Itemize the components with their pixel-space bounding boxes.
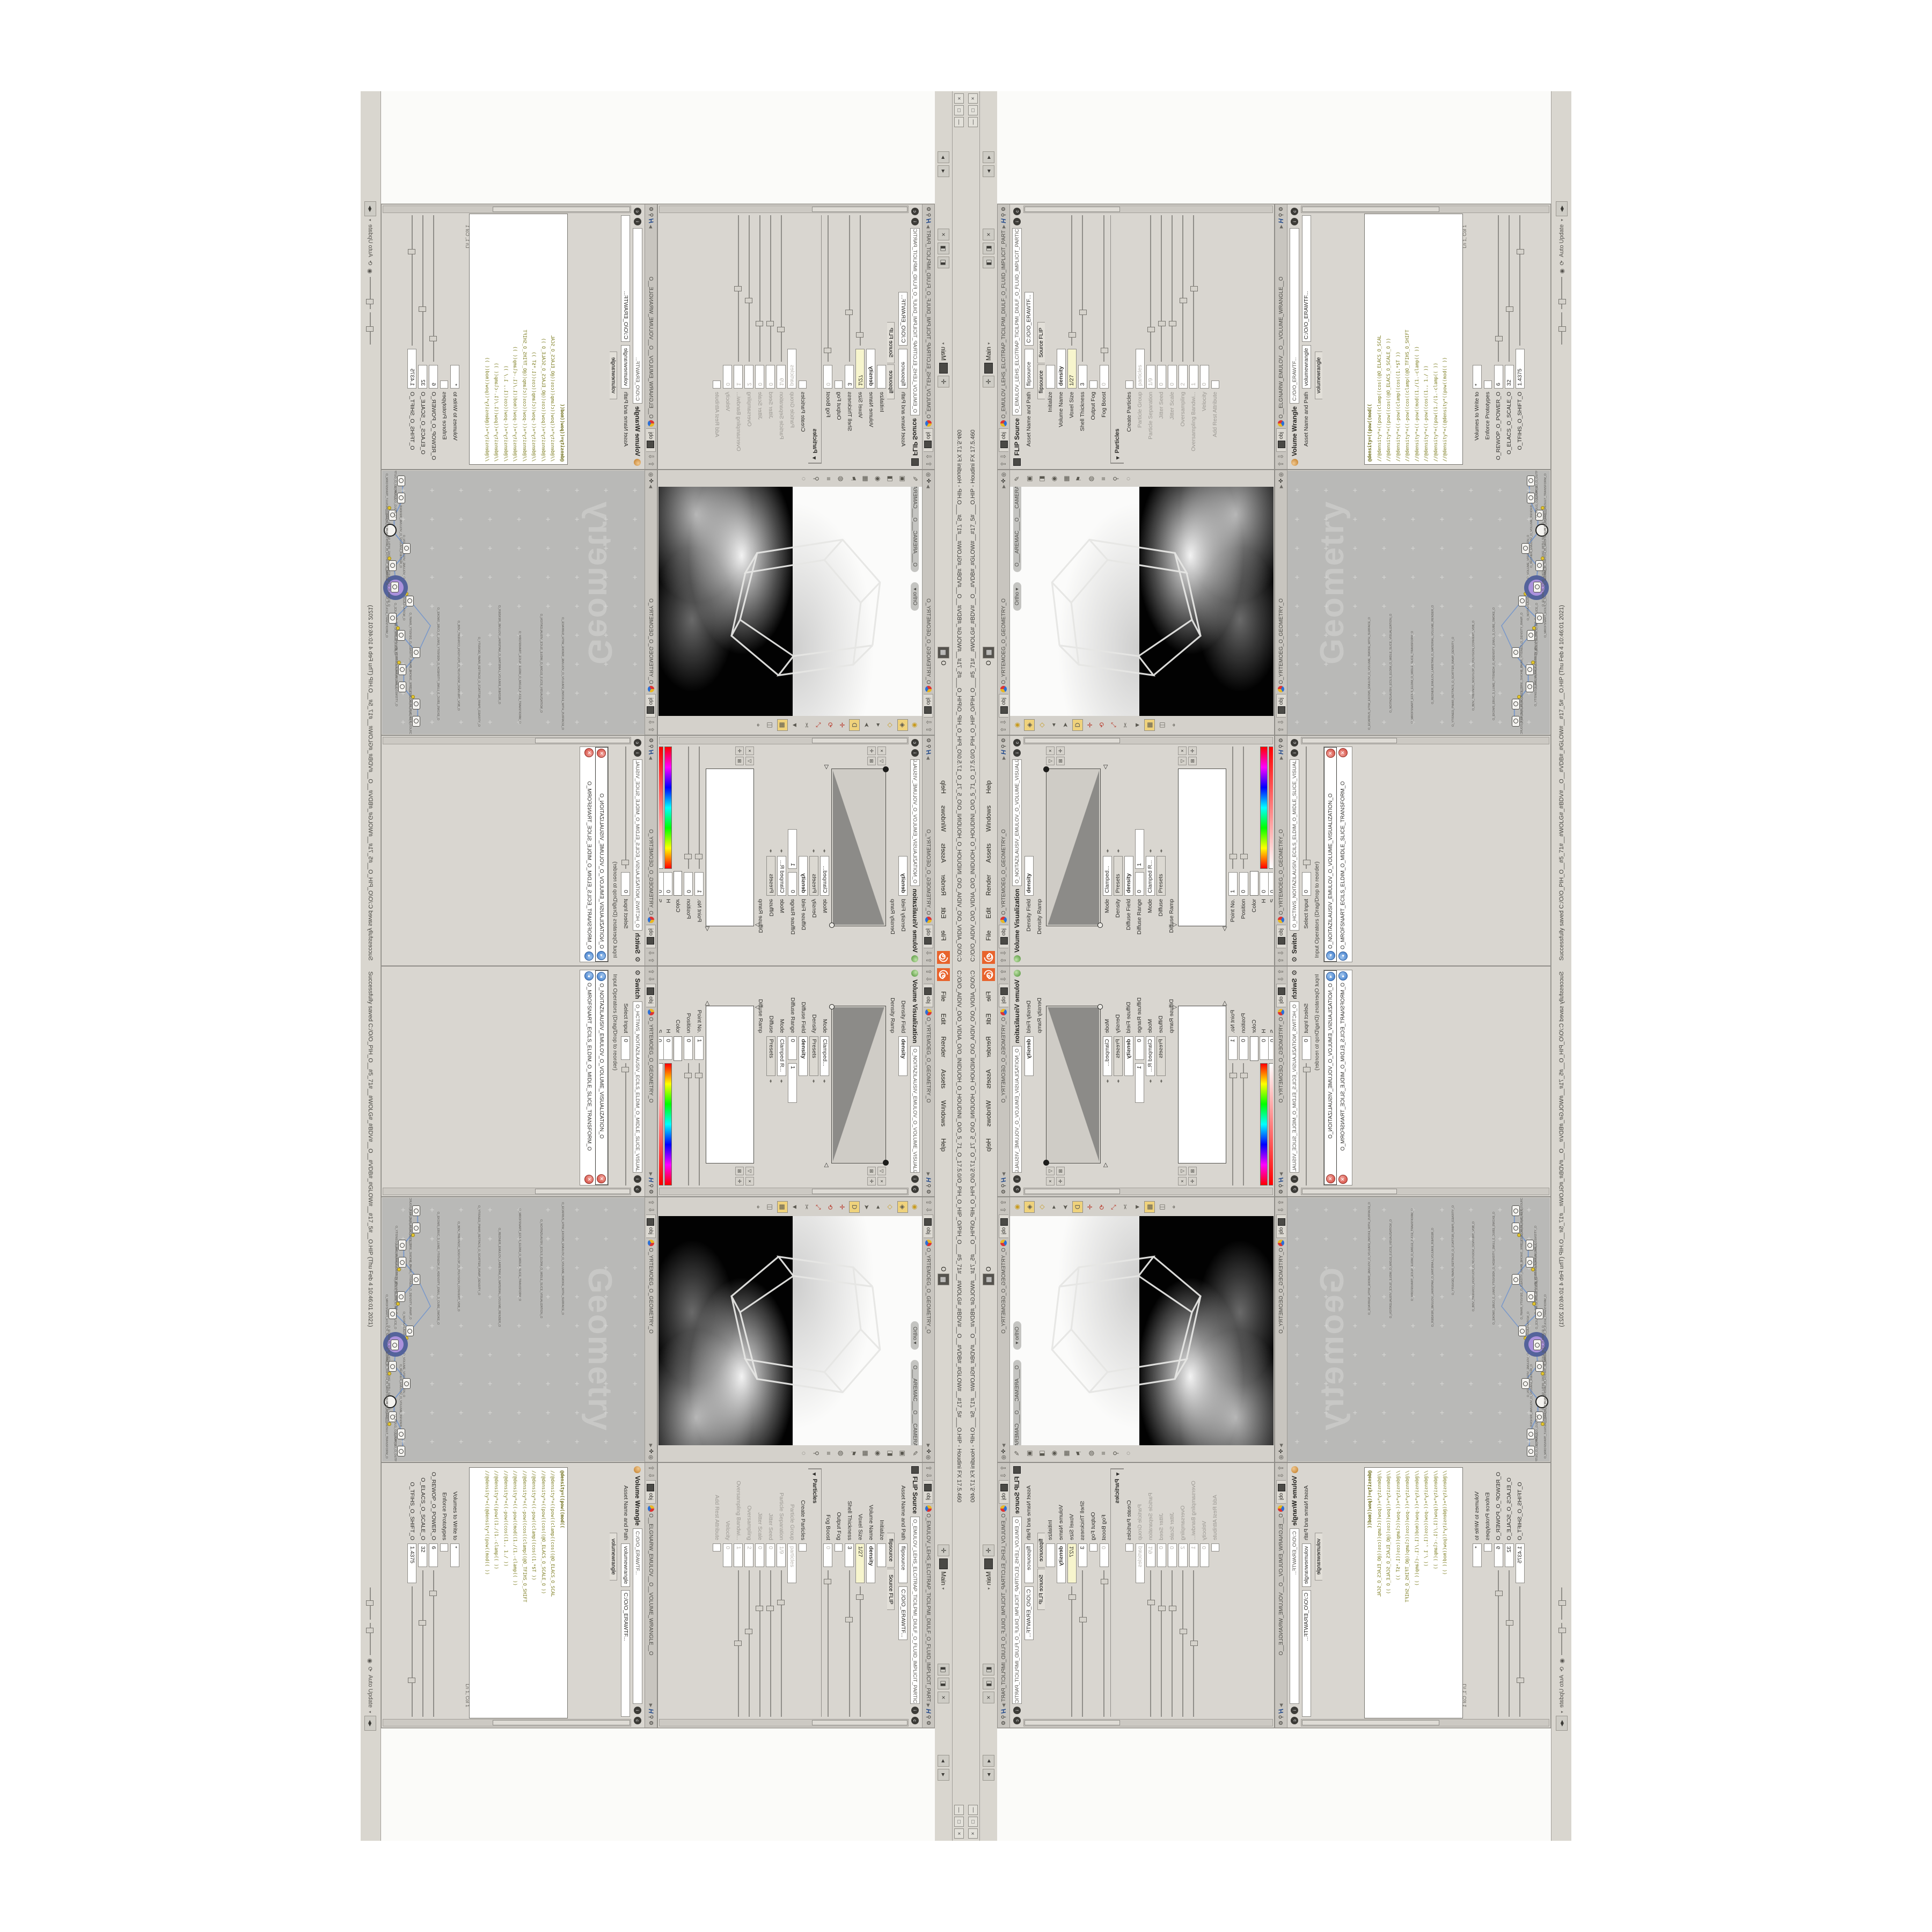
display-normals-icon[interactable]: ⚑ [848,473,858,484]
back-arrow-icon[interactable]: ◂ [874,720,883,730]
help-circle-icon[interactable]: i [1013,749,1021,757]
param-value-field[interactable]: Clamped R... [778,856,787,896]
ramp-button[interactable]: ⊞ [1056,757,1065,765]
param-value-field[interactable]: Clamped... [1103,1036,1112,1076]
scale-tool-icon[interactable]: ⤢ [814,720,823,730]
menu-edit[interactable]: Edit [940,902,947,925]
viewport-canvas[interactable]: Ortho ▾ O___AREMAC___O___CAMERA___O [1010,487,1274,716]
volvis-node-path-field[interactable]: O_NOITAZILAUSIV_EMULOV_O_VOLUME_VISUALIZ… [1012,1046,1022,1173]
desktop-selector[interactable]: Main [985,347,992,361]
param-value-field[interactable]: 0 [766,1543,775,1567]
select-input-slider[interactable] [622,747,630,869]
search-icon[interactable]: ⚲ [1278,1715,1284,1719]
spinner-arrows[interactable]: ◂▸ [1105,1079,1110,1082]
param-value-field[interactable]: 0 [1100,1543,1109,1567]
refresh-icon[interactable]: ⟳ [367,1667,374,1672]
checkbox[interactable] [1484,380,1492,389]
ramp-marker-top[interactable]: ▽ [754,923,760,927]
param-value-field[interactable]: flipsource [899,349,908,389]
ramp-area[interactable]: ▽◁ [1178,1006,1226,1163]
ramp-button[interactable]: ▽ [877,757,886,765]
checkbox[interactable] [713,380,721,389]
param-value-field[interactable]: Presets [1114,1036,1123,1076]
param-slider[interactable] [1190,215,1197,362]
snap-tool-icon[interactable]: ◇ [885,1202,895,1212]
pane-split-icon[interactable]: ✛ [983,1545,994,1556]
insert-input-icon[interactable]: ◂ [1338,971,1348,980]
checkbox[interactable] [1484,1543,1492,1552]
select-arrow-icon[interactable]: ➤ [1060,720,1070,730]
checkbox[interactable] [1125,1543,1133,1552]
param-value-field[interactable]: particles [788,1543,797,1583]
param-value-field[interactable]: density [1024,856,1034,896]
param-value-field[interactable]: 0 [1100,365,1109,389]
comment-circle-icon[interactable]: c [1291,1717,1298,1724]
param-value-field[interactable]: 3 [1078,1543,1087,1567]
volvis-node-path-field[interactable]: O_NOITAZILAUSIV_EMULOV_O_VOLUME_VISUALIZ… [910,759,920,886]
network-type-tab[interactable]: obj [1276,984,1286,1007]
pane-maximize-icon[interactable]: ⇧ [1277,969,1285,975]
render-view-tool-icon[interactable]: ⌖ [753,720,763,730]
network-type-tab[interactable]: obj [999,694,1008,718]
scale-tool-icon[interactable]: ⤢ [1109,720,1118,730]
translate-tool-icon[interactable]: ✛ [837,1202,847,1212]
viewport-canvas[interactable]: Ortho ▾ O___AREMAC___O___CAMERA___O [658,1216,922,1445]
ramp-area[interactable]: ▽◁ [706,1006,754,1163]
select-input-field[interactable]: 0 [1302,1036,1311,1060]
tab-source-flip[interactable]: Source FLIP [887,1569,895,1611]
param-value-field[interactable]: 0 [1260,1036,1269,1060]
search-icon[interactable]: ⚲ [1278,213,1284,217]
comment-circle-icon[interactable]: c [634,1717,641,1724]
pane-minimize-icon[interactable]: ⇩ [924,976,933,982]
help-circle-icon[interactable]: i [911,749,919,757]
tab-flipsource[interactable]: flipsource [1037,1533,1045,1568]
ramp-area[interactable]: ▽◁ [706,769,754,926]
spinner-arrows[interactable]: ◂▸ [780,1079,785,1082]
param-slider[interactable] [1240,747,1247,869]
network-node[interactable] [1518,1326,1526,1336]
breadcrumb[interactable]: O_YRTEMOEG_O_GEOMETRY_O [648,1017,654,1170]
param-slider[interactable] [1505,1570,1513,1717]
tab-flipsource[interactable]: flipsource [887,1533,895,1568]
comment-circle-icon[interactable]: c [634,208,641,215]
param-slider[interactable] [1079,1570,1086,1717]
wrangle-scrollbar[interactable] [1301,1719,1549,1726]
handles-tool-icon[interactable]: D [849,719,860,731]
param-value-field[interactable]: Clamped R... [778,1036,787,1076]
param-value-field[interactable]: Clamped R... [1146,1036,1155,1076]
back-arrow-icon[interactable]: ◂ [1049,1202,1058,1212]
param-value-field[interactable]: * [451,1543,460,1567]
param-slider[interactable] [419,215,427,362]
menu-render[interactable]: Render [985,1030,992,1063]
ramp-position-marker[interactable]: ◁ [823,765,830,769]
pane-minimize-icon[interactable]: ⇩ [1277,453,1285,459]
ramp-button[interactable]: ⊞ [867,1167,876,1175]
ramp-button[interactable]: × [1178,747,1187,755]
display-shaded-icon[interactable]: ▣ [1024,473,1034,484]
view-tool-icon[interactable]: ◉ [910,1202,920,1212]
gear-icon[interactable]: ⚙ [1278,207,1284,211]
pin-icon[interactable]: ✜ [1001,479,1007,483]
insert-input-icon[interactable]: ◂ [1326,972,1335,981]
comment-circle-icon[interactable]: c [1291,1185,1298,1193]
camera-tool-icon[interactable]: ◫ [1157,720,1167,730]
select-input-slider[interactable] [1302,1063,1310,1185]
ramp-button[interactable]: ✛ [735,1177,744,1185]
pane-minimize-icon[interactable]: ⇩ [1277,976,1285,982]
param-slider[interactable] [735,215,742,362]
camera-target-icon[interactable]: ◎ [1278,1455,1284,1460]
layout-grid-icon[interactable]: ▦ [938,647,949,658]
param-value-field[interactable]: Clamped... [821,856,830,896]
network-node[interactable] [397,475,405,486]
param-value-field[interactable]: 6 [429,365,438,389]
pane-split-icon[interactable]: ✛ [938,1545,949,1556]
camera-tool-icon[interactable]: ◫ [765,720,775,730]
menu-render[interactable]: Render [940,1030,947,1063]
display-normals-icon[interactable]: ⚑ [848,1448,858,1459]
menu-assets[interactable]: Assets [985,838,992,869]
snap-tool-icon[interactable]: ◇ [885,720,895,730]
display-points-icon[interactable]: ✎ [1012,1448,1022,1459]
breadcrumb[interactable]: O__ELGNARW_EMULOV__O__VOLUME_WRANGLE__O [1278,230,1284,419]
search-icon[interactable]: ⚲ [648,1715,654,1719]
layout-grid-icon[interactable]: ▦ [938,1274,949,1285]
spinner-arrows[interactable]: ◂▸ [823,1079,828,1082]
param-value-field[interactable]: * [451,365,460,389]
section-particles[interactable]: ▾Particles [1110,1468,1124,1717]
zoom-view-icon[interactable]: ⚲ [1111,473,1121,484]
scale-tool-icon[interactable]: ⤢ [814,1202,823,1212]
param-value-field[interactable]: 0 [1135,872,1144,896]
node-display-flag[interactable] [411,1233,415,1237]
menu-file[interactable]: File [940,925,947,947]
pane-maximize-icon[interactable]: ⇧ [647,461,655,467]
search-icon[interactable]: ⚲ [926,744,932,748]
network-node[interactable] [1526,682,1534,692]
pane-maximize-icon[interactable]: ⇧ [999,1465,1008,1471]
flip-node-path-field[interactable]: O_EMULOV_LEHS_ELCITRAP_TICILPMI_DIULF_O_… [910,1517,920,1704]
param-value-field[interactable]: 0 [788,872,797,896]
param-slider[interactable] [745,1570,753,1717]
param-value-field[interactable]: 1 [734,1543,743,1567]
comment-circle-icon[interactable]: c [634,739,641,747]
camera-tool-icon[interactable]: ◫ [1157,1202,1167,1212]
param-slider[interactable] [1516,215,1524,346]
ramp-handle-start[interactable] [829,923,835,928]
delete-input-icon[interactable]: ✕ [585,748,594,757]
param-slider[interactable] [1158,1570,1165,1717]
pane-maximize-icon[interactable]: ⇧ [999,1199,1008,1205]
param-value-field[interactable]: Presets [810,1036,819,1076]
param-value-field[interactable]: 0 [756,1543,765,1567]
network-node[interactable] [398,1240,406,1250]
select-input-field[interactable]: 0 [1302,872,1311,896]
breadcrumb[interactable]: O_EMULOV_LEHS_ELCITRAP_TICILPMI_DIULF_O_… [926,230,932,419]
status-slider-a[interactable] [1558,1587,1565,1620]
snap-axis-tool-icon[interactable]: ▼ [790,1202,800,1212]
input-operator-row[interactable]: ◂O_MROFSNART_ECILS_ELDIM_O_MIDLE_SLICE_T… [1337,747,1349,962]
minimize-button[interactable]: — [968,117,978,127]
display-options-icon[interactable]: ≡ [824,473,833,484]
density-ramp-widget[interactable]: ◁▽×⊞✛ [830,968,887,1188]
network-type-tab[interactable]: obj [1276,1214,1286,1238]
zoom-view-icon[interactable]: ⚲ [811,1448,821,1459]
takes-icon[interactable] [939,1558,948,1569]
menu-file[interactable]: File [940,985,947,1007]
gear-icon[interactable]: ⚙ [1278,738,1284,743]
toolbar-a-icon[interactable]: ◧ [983,257,994,268]
param-value-field[interactable]: 0 [684,872,693,896]
path-forward-icon[interactable]: ▸ [999,1444,1008,1447]
hsv-gradient-s[interactable] [659,747,663,869]
network-node[interactable] [397,1446,405,1457]
param-slider[interactable] [696,1063,703,1185]
update-mode-toggle[interactable]: ◂▸ [1556,201,1568,216]
network-node[interactable] [1526,664,1534,675]
param-value-field[interactable]: 0 [1268,1036,1274,1060]
flip-scrollbar[interactable] [659,1719,909,1726]
ramp-button[interactable]: ⊞ [735,1167,744,1175]
back-arrow-icon[interactable]: ◂ [874,1202,883,1212]
network-node[interactable] [1535,560,1543,571]
checkbox[interactable] [799,1543,807,1552]
menu-edit[interactable]: Edit [985,902,992,925]
volvis-scrollbar[interactable] [1023,737,1273,744]
ramp-button[interactable]: ▽ [745,757,754,765]
comment-circle-icon[interactable]: c [1013,208,1021,215]
param-value-field[interactable]: 0 [1260,872,1269,896]
diffuse-ramp-widget[interactable]: ▽◁▽×⊞✛ [705,968,755,1188]
refresh-icon[interactable]: ⟳ [367,260,374,265]
ramp-area[interactable]: ◁ [831,1006,886,1163]
param-value-field[interactable]: 1/9 [777,365,786,389]
param-slider[interactable] [1229,747,1236,869]
param-value-field[interactable] [1046,365,1055,389]
switch-scrollbar[interactable] [1301,1188,1549,1195]
snap-axis-tool-icon[interactable]: ▼ [1132,720,1142,730]
window-titlebar[interactable]: C:/O/O_AIDIV_O/O_VIDIA_O/O_INIDUOH_O_HOU… [966,966,980,1841]
ramp-button[interactable]: ✛ [1056,747,1065,755]
help-circle-icon[interactable]: i [1291,1175,1298,1183]
param-value-field[interactable]: flipsource [1024,349,1034,389]
param-value-field[interactable]: 1.4375 [408,1543,417,1583]
minimize-button[interactable]: — [968,1805,978,1815]
display-options-icon[interactable]: ≡ [1099,1448,1108,1459]
path-forward-icon[interactable]: ▸ [1277,1173,1285,1176]
network-type-tab[interactable]: obj [999,984,1008,1007]
pane-minimize-icon[interactable]: ⇩ [1277,719,1285,725]
tab-flipsource[interactable]: flipsource [887,364,895,399]
network-node[interactable] [1512,716,1520,727]
network-node[interactable] [402,1378,411,1389]
network-node[interactable] [1533,582,1541,592]
select-arrow-icon[interactable]: ➤ [862,1202,872,1212]
pane-maximize-icon[interactable]: ⇧ [647,1199,655,1205]
param-value-field[interactable]: Presets [1114,856,1123,896]
nav-left-icon[interactable]: ◂ [938,165,949,177]
path-forward-icon[interactable]: ▸ [924,756,933,760]
input-operators-list[interactable]: ◂O_NOITAZILAUSIV_EMULOV_O_VOLUME_VISUALI… [580,970,609,1185]
view-mode-pill[interactable]: Ortho ▾ [911,1321,919,1350]
network-canvas[interactable]: Geometry +++++++++++++++++++++++++++++++… [382,1198,645,1461]
insert-input-icon[interactable]: ◂ [585,952,594,961]
delete-input-icon[interactable]: ✕ [585,1175,594,1184]
camera-name-pill[interactable]: O___AREMAC___O___CAMERA___O [1013,487,1021,572]
param-slider[interactable] [778,215,785,362]
param-value-field[interactable]: 32 [419,1543,428,1567]
menu-help[interactable]: Help [985,774,992,800]
param-value-field[interactable]: 1 [1189,365,1198,389]
input-operator-row[interactable]: ◂O_NOITAZILAUSIV_EMULOV_O_VOLUME_VISUALI… [1324,970,1337,1185]
diffuse-ramp-widget[interactable]: ▽◁▽×⊞✛ [1177,968,1227,1188]
menu-windows[interactable]: Windows [940,1094,947,1132]
status-slider-b[interactable] [1558,277,1565,309]
vex-code-editor[interactable]: @density=((pow((mod((//@density*=((pow((… [469,214,568,465]
layout-grid-icon[interactable]: ▦ [983,1274,994,1285]
network-node[interactable] [1521,1378,1529,1389]
param-value-field[interactable]: 1/27 [856,349,865,389]
select-geometry-tool-icon[interactable]: ◈ [897,719,908,731]
translate-tool-icon[interactable]: ✛ [1085,720,1095,730]
update-mode-toggle[interactable]: ◂▸ [364,1716,376,1731]
network-canvas[interactable]: Geometry +++++++++++++++++++++++++++++++… [382,471,645,734]
param-slider[interactable] [1079,215,1086,362]
asset-path-field[interactable]: C:/O/O_ERAWTF... [621,1590,631,1717]
param-value-field-2[interactable]: C:/O/O_ERAWTF... [1024,1586,1034,1640]
delete-input-icon[interactable]: ✕ [1326,749,1335,758]
param-value-field[interactable]: 2 [1179,1543,1188,1567]
param-value-field[interactable]: 2 [1179,365,1188,389]
gear-icon[interactable]: ⚙ [1001,207,1007,211]
network-node[interactable] [412,647,420,658]
color-swatch[interactable] [674,871,682,896]
gear-icon[interactable]: ⚙ [648,1189,654,1194]
param-slider[interactable] [824,1570,832,1717]
zoom-view-icon[interactable]: ⚲ [1111,1448,1121,1459]
menubar-close-icon[interactable]: × [983,1692,994,1703]
gear-icon[interactable]: ⚙ [1278,1721,1284,1725]
wrangle-node-path-field[interactable]: C:/O/O_ERAWTF... [633,1528,642,1704]
param-slider[interactable] [1240,1063,1247,1185]
param-value-field[interactable]: 1 [734,365,743,389]
pane-minimize-icon[interactable]: ⇩ [924,950,933,956]
node-display-flag[interactable] [387,1372,391,1375]
breadcrumb[interactable]: O_EMULOV_LEHS_ELCITRAP_TICILPMI_DIULF_O_… [1001,1513,1007,1702]
ramp-position-marker[interactable]: ◁ [1102,765,1109,769]
network-type-tab[interactable]: obj [646,1214,656,1238]
takes-icon[interactable] [939,363,948,374]
param-value-field[interactable]: 32 [1505,365,1514,389]
search-icon[interactable]: ⚲ [926,213,932,217]
pane-minimize-icon[interactable]: ⇩ [647,1207,655,1213]
spinner-arrows[interactable]: ◂▸ [769,1079,774,1082]
display-shaded-icon[interactable]: ▣ [898,473,908,484]
param-slider[interactable] [1190,1570,1197,1717]
param-slider[interactable] [1505,215,1513,362]
network-node[interactable] [412,716,420,727]
tab-volumewrangle[interactable]: volumewrangle [610,352,617,399]
network-node[interactable] [406,596,414,606]
pane-maximize-icon[interactable]: ⇧ [647,969,655,975]
view-mode-pill[interactable]: Ortho ▾ [911,582,919,611]
section-particles[interactable]: ▾Particles [808,1468,822,1717]
display-options-icon[interactable]: ≡ [1099,473,1108,484]
pin-icon[interactable]: ✜ [648,1449,654,1453]
ramp-button[interactable]: ⊞ [1056,1167,1065,1175]
pane-maximize-icon[interactable]: ⇧ [647,1465,655,1471]
asset-name-field[interactable]: volumewrangle [621,1543,631,1587]
network-node[interactable] [389,560,397,571]
wrangle-node-path-field[interactable]: C:/O/O_ERAWTF... [1290,1528,1299,1704]
maximize-button[interactable]: □ [954,1817,964,1827]
param-value-field[interactable]: 1 [1189,1543,1198,1567]
pin-icon[interactable]: ✜ [648,479,654,483]
param-value-field[interactable]: particles [1136,1543,1145,1583]
gear-icon[interactable]: ⚙ [926,738,932,743]
display-wire-icon[interactable]: ◨ [885,473,895,484]
node-display-flag[interactable] [387,1422,391,1426]
param-slider[interactable] [1179,1570,1187,1717]
status-slider-a[interactable] [367,1587,374,1620]
network-node[interactable] [1535,1361,1543,1372]
breadcrumb[interactable]: O_EMULOV_LEHS_ELCITRAP_TICILPMI_DIULF_O_… [1001,230,1007,419]
param-slider[interactable] [857,1586,864,1717]
help-circle-icon[interactable]: i [1013,1707,1021,1714]
search-icon[interactable]: ⚲ [648,744,654,748]
network-node[interactable] [412,1274,420,1285]
checkbox[interactable] [1125,380,1133,389]
viewport-canvas[interactable]: Ortho ▾ O___AREMAC___O___CAMERA___O [1010,1216,1274,1445]
ramp-button[interactable]: ▽ [1178,757,1187,765]
param-value-field[interactable]: density [1057,1543,1066,1583]
pane-minimize-icon[interactable]: ⇩ [924,1473,933,1479]
input-operators-list[interactable]: ◂O_NOITAZILAUSIV_EMULOV_O_VOLUME_VISUALI… [580,747,609,962]
spinner-arrows[interactable]: ◂▸ [1159,850,1163,853]
param-value-field[interactable]: flipsource [1024,1543,1034,1583]
cut-tool-icon[interactable]: ✂ [802,720,811,730]
param-value-field[interactable]: particles [788,349,797,389]
input-operator-row[interactable]: ◂O_NOITAZILAUSIV_EMULOV_O_VOLUME_VISUALI… [595,747,608,962]
gear-icon[interactable]: ⚙ [648,207,654,211]
param-value-field[interactable]: density [799,856,808,896]
switch-node-path-field[interactable]: O_HCTIWS_NOITAZILAUSIV_ECILS_ELDIM_O_MID… [1290,759,1299,931]
node-display-flag[interactable] [397,661,401,664]
pane-split-icon[interactable]: ✛ [983,376,994,387]
asset-path-field[interactable]: C:/O/O_ERAWTF... [1302,215,1311,342]
display-volume-icon[interactable]: ◉ [1049,473,1059,484]
minimize-button[interactable]: — [954,1805,964,1815]
search-icon[interactable]: ⚲ [648,1184,654,1188]
view-lock-icon[interactable]: ◌ [799,1448,809,1459]
select-geometry-tool-icon[interactable]: ◈ [1024,719,1035,731]
pane-maximize-icon[interactable]: ⇧ [924,1199,933,1205]
vex-code-editor[interactable]: @density=((pow((mod((//@density*=((pow((… [469,1467,568,1718]
param-value-field[interactable] [877,365,887,389]
search-icon[interactable]: ⚲ [1001,1184,1007,1188]
flip-node-path-field[interactable]: O_EMULOV_LEHS_ELCITRAP_TICILPMI_DIULF_O_… [1012,228,1022,415]
delete-input-icon[interactable]: ✕ [1338,1175,1348,1184]
breadcrumb[interactable]: O_YRTEMOEG_O_GEOMETRY_O [1278,1248,1284,1442]
network-canvas[interactable]: Geometry +++++++++++++++++++++++++++++++… [1287,471,1550,734]
delete-input-icon[interactable]: ✕ [1326,1174,1335,1183]
menu-file[interactable]: File [985,925,992,947]
menu-render[interactable]: Render [985,869,992,902]
auto-update-selector[interactable]: Auto Update [1558,1675,1565,1708]
param-value-field[interactable]: 0 [1200,365,1209,389]
